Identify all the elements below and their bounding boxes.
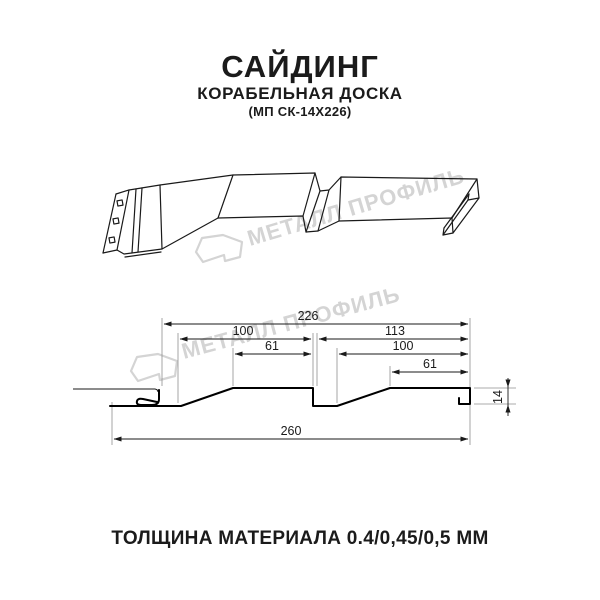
dim-label-right-segment: 113 (385, 324, 405, 338)
dim-label-left-pitch: 100 (233, 324, 254, 338)
profile-outline (110, 388, 470, 406)
watermark-section-area: МЕТАЛЛ ПРОФИЛЬ (131, 281, 403, 381)
watermark-logo-icon (131, 354, 177, 381)
dimension-lines (114, 324, 508, 439)
watermark-logo-icon (196, 235, 242, 262)
dim-label-right-pitch: 100 (393, 339, 414, 353)
dim-label-total-width: 226 (298, 309, 319, 323)
extension-lines (112, 318, 516, 445)
watermark-text: МЕТАЛЛ ПРОФИЛЬ (179, 281, 403, 363)
watermark-text: МЕТАЛЛ ПРОФИЛЬ (244, 163, 467, 251)
product-drawing-page: САЙДИНГ КОРАБЕЛЬНАЯ ДОСКА (МП СК-14Х226)… (0, 0, 600, 600)
thickness-note: ТОЛЩИНА МАТЕРИАЛА 0.4/0,45/0,5 ММ (0, 528, 600, 550)
nail-holes (109, 200, 123, 243)
dim-label-right-flat: 61 (423, 357, 437, 371)
technical-drawing-canvas: МЕТАЛЛ ПРОФИЛЬ МЕТАЛЛ ПРОФИЛЬ (0, 0, 600, 600)
dim-label-profile-height: 14 (491, 390, 505, 404)
dim-label-overall-width: 260 (281, 424, 302, 438)
dim-label-left-flat: 61 (265, 339, 279, 353)
adjacent-panel-line (73, 389, 158, 392)
